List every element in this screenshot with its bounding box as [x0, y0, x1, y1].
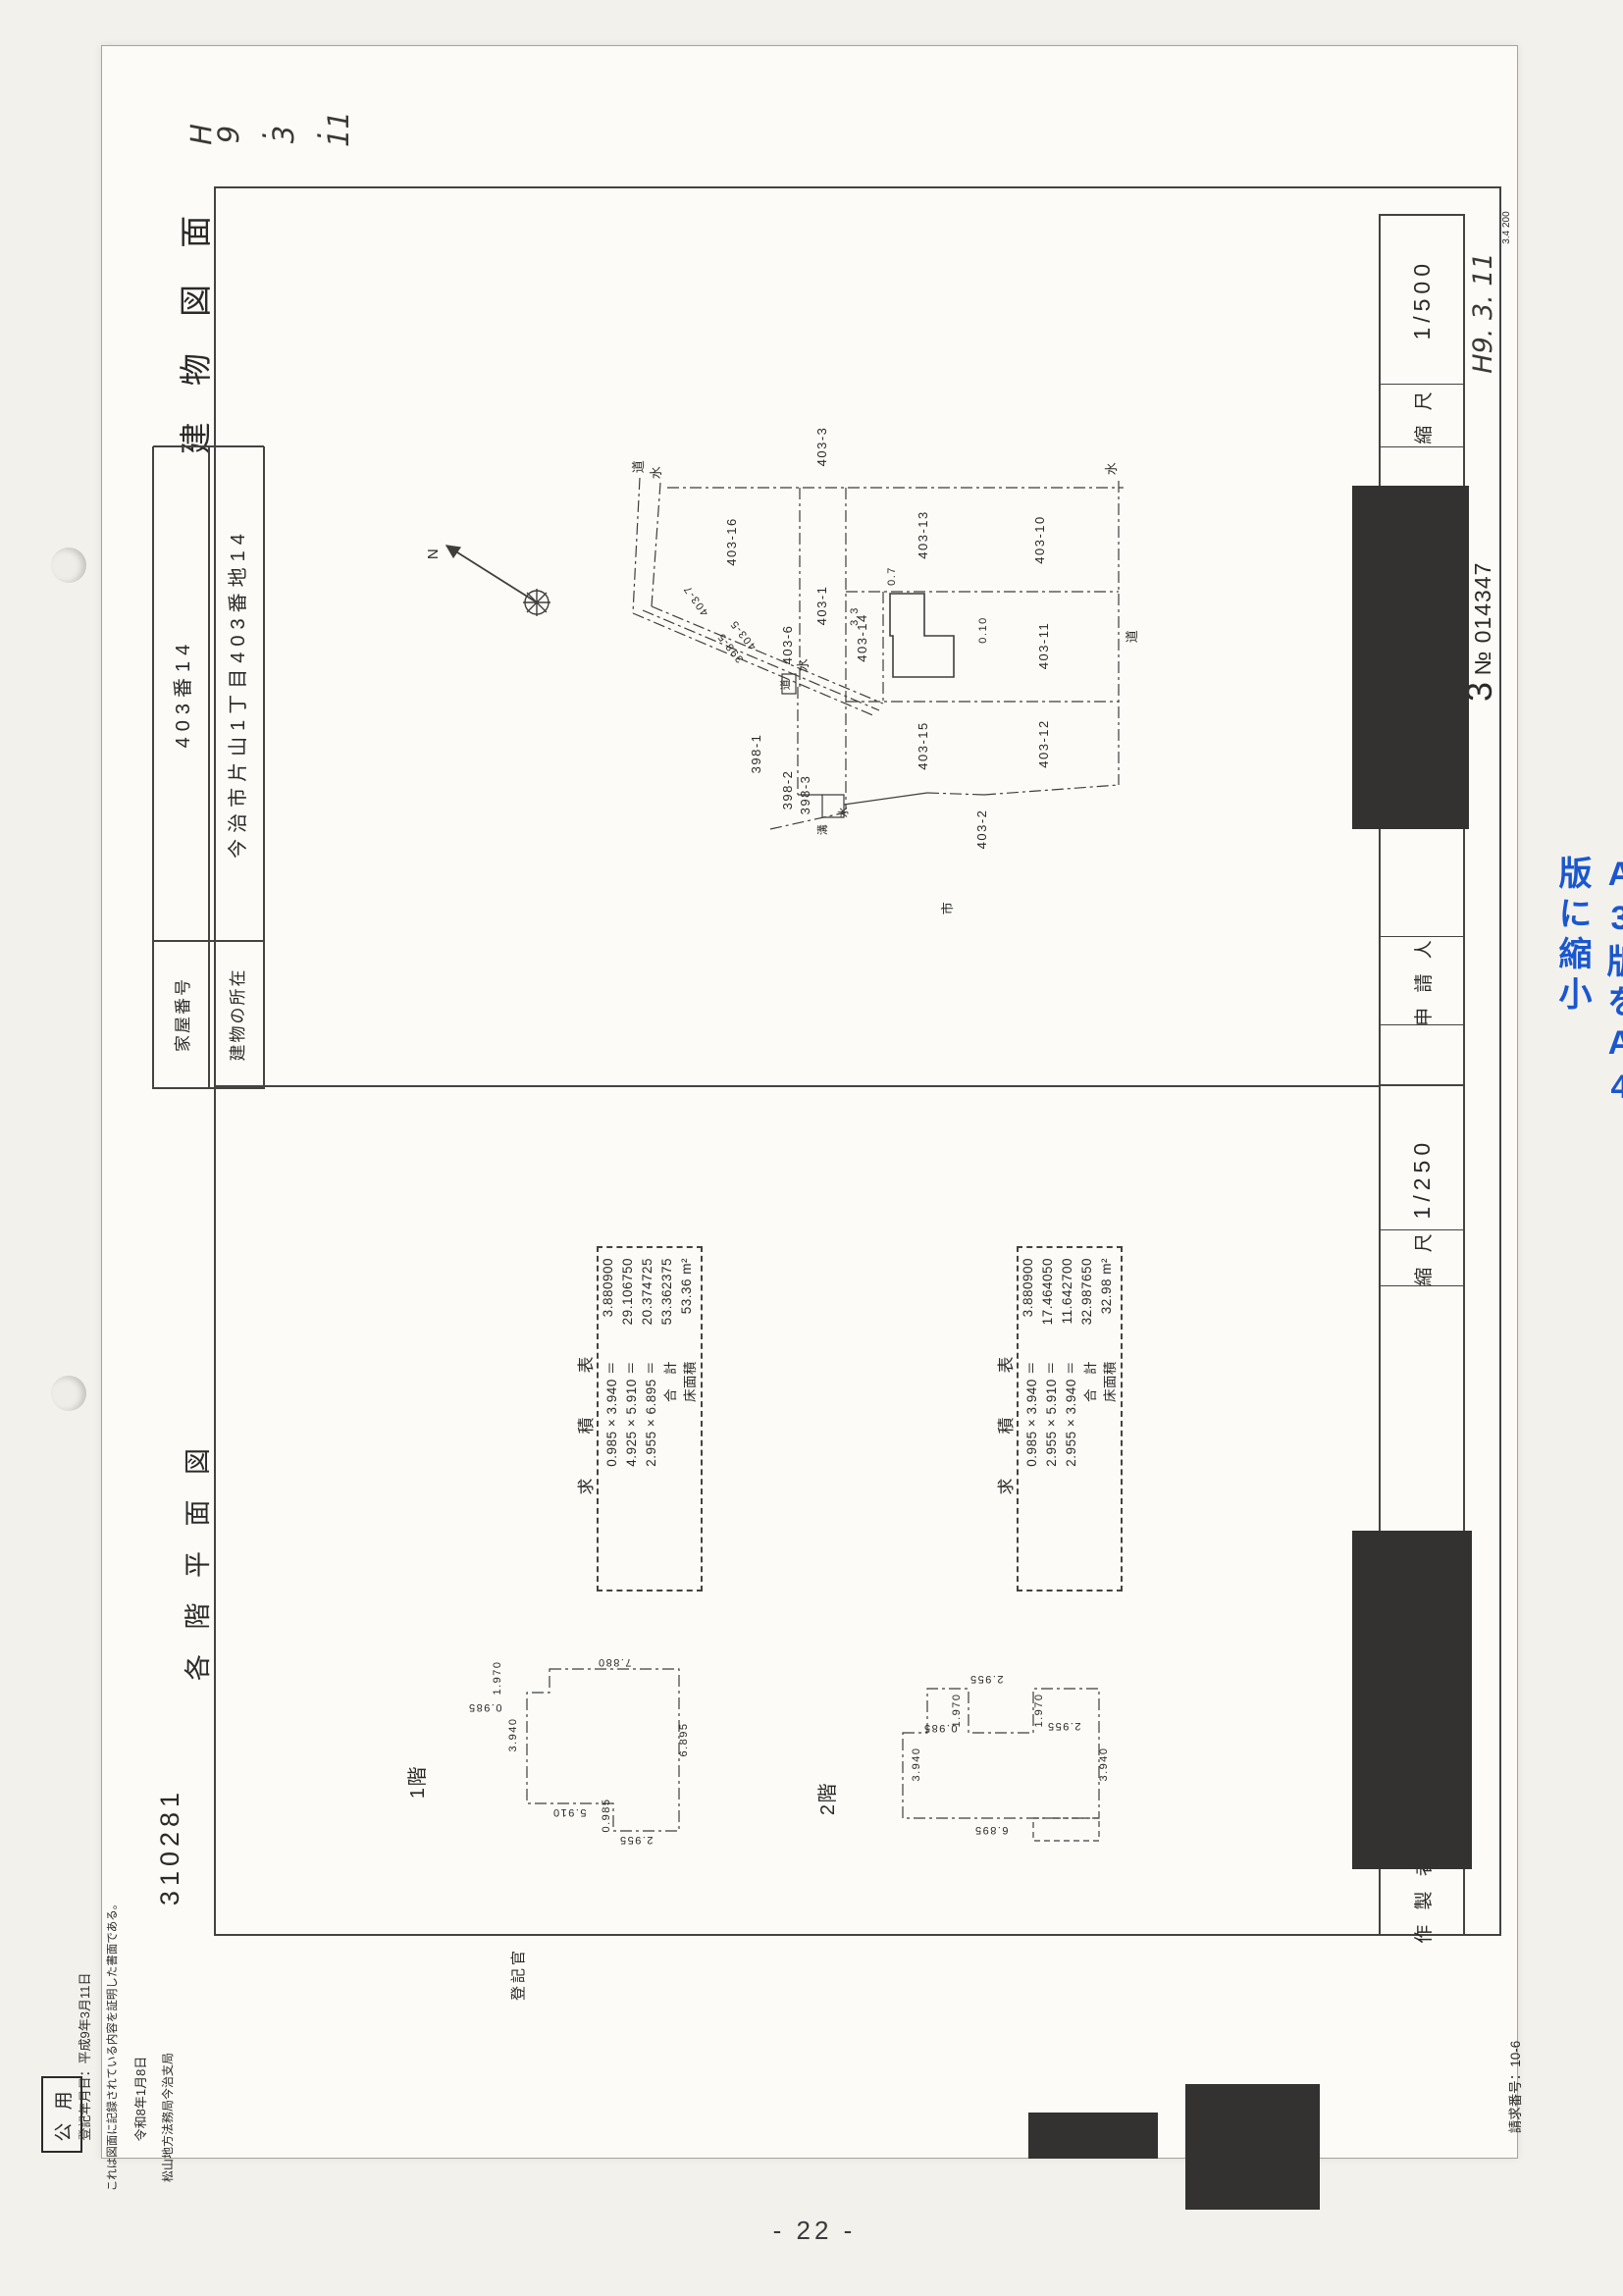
- drawing-line: [984, 785, 1119, 795]
- drawing-label: 道: [778, 678, 792, 691]
- drawing-label: 0.985: [922, 1722, 957, 1734]
- blue-reduction-stamp: A3版をA4版に縮小: [1548, 856, 1623, 1150]
- scale-value-500: 1/500: [1381, 216, 1463, 385]
- drawing-label: 403-12: [1036, 719, 1051, 767]
- certification-line-3: 松山地方法務局今治支局: [155, 2045, 179, 2190]
- drawing-label: 水: [796, 657, 811, 672]
- page-title-building-drawing: 建 物 図 面: [165, 188, 222, 468]
- certification-line-1: これは図面に記録されている内容を証明した書面である。: [100, 1937, 124, 2153]
- drawing-label: 0.985: [601, 1798, 612, 1832]
- table-row: 0.985 × 3.940 ＝3.880900: [1021, 1258, 1040, 1580]
- drawing-label: 1階: [406, 1765, 429, 1799]
- drawing-label: 398-3: [798, 775, 812, 815]
- table-row: 2.955 × 5.910 ＝17.464050: [1040, 1258, 1060, 1580]
- drawing-label: 403-15: [916, 721, 930, 769]
- drawing-line: [1033, 1818, 1099, 1841]
- drawing-label: 2階: [816, 1782, 839, 1815]
- table-row: 床面積32.98 m²: [1099, 1258, 1119, 1580]
- certification-line-2: 令和8年1月8日: [128, 2045, 151, 2153]
- table-row: 4.925 × 5.910 ＝29.106750: [620, 1258, 640, 1580]
- handwritten-date-right: H9. 3. 11: [1464, 206, 1501, 420]
- drawing-label: 1.970: [492, 1660, 503, 1695]
- area-table-2f-title: 求 積 表: [992, 1246, 1017, 1592]
- drawing-label: 2.955: [1046, 1720, 1080, 1732]
- drawing-label: 403-1: [814, 586, 829, 626]
- drawing-line: [890, 594, 954, 677]
- drawing-label: 道: [1125, 629, 1139, 644]
- drawing-label: 3.3: [849, 606, 861, 626]
- section-title-floor-plans: 各 階 平 面 図: [173, 1433, 218, 1688]
- drawing-label: 2.955: [969, 1673, 1003, 1685]
- drawing-label: 403-7: [681, 583, 710, 618]
- punch-hole-bottom: [51, 1376, 86, 1411]
- table-row: 2.955 × 3.940 ＝11.642700: [1060, 1258, 1079, 1580]
- maker-label: 作 製 者: [1381, 1862, 1463, 1934]
- location-value: 今治市片山1丁目403番地14: [209, 445, 265, 941]
- area-table-2f: 求 積 表 0.985 × 3.940 ＝3.880900 2.955 × 5.…: [992, 1246, 1112, 1592]
- drawing-label: 溝: [816, 823, 829, 836]
- drawing-label: 1.970: [1033, 1693, 1045, 1727]
- area-table-1f-title: 求 積 表: [572, 1246, 597, 1592]
- drawing-label: 2.955: [618, 1834, 653, 1846]
- house-number-label: 家屋番号: [153, 941, 209, 1088]
- drawing-line: [633, 478, 640, 613]
- redaction-box-3: [1028, 2113, 1158, 2159]
- section-divider-line: [214, 1085, 1381, 1087]
- area-table-1f: 求 積 表 0.985 × 3.940 ＝3.880900 4.925 × 5.…: [572, 1246, 692, 1592]
- drawing-label: 403-2: [974, 809, 989, 850]
- drawing-label: 0.7: [886, 566, 898, 586]
- redaction-box-1: [1352, 486, 1469, 829]
- applicant-label: 申 請 人: [1381, 937, 1463, 1025]
- scale-label-500: 縮 尺: [1381, 385, 1463, 448]
- drawing-label: 403-13: [916, 510, 930, 558]
- drawing-label: 403-10: [1032, 515, 1047, 563]
- drawing-label: 市: [940, 901, 955, 915]
- scale-value-250: 1/250: [1381, 1128, 1463, 1230]
- drawing-label: 403-11: [1036, 622, 1051, 670]
- drawing-label: 道: [631, 459, 646, 474]
- drawing-label: 7.880: [597, 1656, 631, 1668]
- small-print-note: 3.4 200: [1497, 186, 1515, 269]
- drawing-line: [652, 483, 660, 606]
- redaction-box-2: [1352, 1531, 1472, 1869]
- drawing-label: 水: [649, 465, 663, 480]
- drawing-label: 0.10: [977, 616, 989, 643]
- drawing-line: [643, 610, 879, 710]
- house-number-value: 403番14: [153, 445, 209, 941]
- scanned-document: H9.3.11 建 物 図 面 家屋番号 403番14 建物の所在 今治市片山1…: [0, 0, 1623, 2296]
- drawing-label: 403-6: [780, 625, 795, 665]
- drawing-label: 5.910: [551, 1806, 586, 1818]
- site-plan: 道水403-3403-16403-7403-5398-5403-6水道403-1…: [584, 407, 1153, 942]
- request-number: 請求番号：10-6: [1500, 2012, 1528, 2162]
- scale-label-250: 縮 尺: [1381, 1230, 1463, 1286]
- page-number: - 22 -: [726, 2216, 903, 2246]
- location-label: 建物の所在: [209, 941, 265, 1088]
- floor-plans: 1階7.8801.9700.9853.9405.9100.9852.9556.8…: [373, 1622, 1158, 1970]
- drawing-label: 403-3: [814, 427, 829, 467]
- drawing-label: 398-1: [749, 734, 763, 774]
- drawing-label: 3.940: [1098, 1747, 1110, 1781]
- table-row: 0.985 × 3.940 ＝3.880900: [601, 1258, 620, 1580]
- drawing-line: [844, 793, 927, 805]
- drawing-label: 6.895: [678, 1722, 690, 1756]
- header-table: 家屋番号 403番14 建物の所在 今治市片山1丁目403番地14: [152, 446, 265, 1089]
- drawing-line: [446, 546, 460, 557]
- drawing-label: 398-2: [780, 770, 795, 810]
- redaction-box-4: [1185, 2084, 1320, 2210]
- drawing-label: 6.895: [973, 1824, 1008, 1836]
- table-row: 合 計32.987650: [1079, 1258, 1099, 1580]
- drawing-label: 水: [837, 806, 850, 818]
- drawing-label: 3.940: [911, 1747, 922, 1781]
- drawing-label: 水: [1104, 461, 1119, 476]
- table-row: 2.955 × 6.895 ＝20.374725: [640, 1258, 659, 1580]
- drawing-line: [633, 613, 875, 716]
- handwritten-date-top: H9.3.11: [188, 118, 355, 183]
- punch-hole-top: [51, 548, 86, 583]
- drawing-line: [446, 546, 537, 602]
- handwritten-char: 11: [322, 122, 355, 147]
- receipt-number: 310281: [151, 1759, 188, 1934]
- table-row: 床面積53.36 m²: [679, 1258, 699, 1580]
- drawing-label: 3.940: [507, 1717, 519, 1751]
- koyo-stamp: 公 用: [41, 2076, 82, 2153]
- drawing-label: 0.985: [467, 1701, 501, 1713]
- drawing-line: [903, 1689, 1099, 1818]
- drawing-label: N: [425, 548, 442, 559]
- drawing-line: [927, 793, 984, 795]
- drawing-label: 403-16: [724, 517, 739, 565]
- north-arrow: N: [422, 518, 579, 651]
- table-row: 合 計53.362375: [659, 1258, 679, 1580]
- drawing-line: [523, 589, 550, 616]
- title-text: 建 物 図 面: [165, 188, 222, 468]
